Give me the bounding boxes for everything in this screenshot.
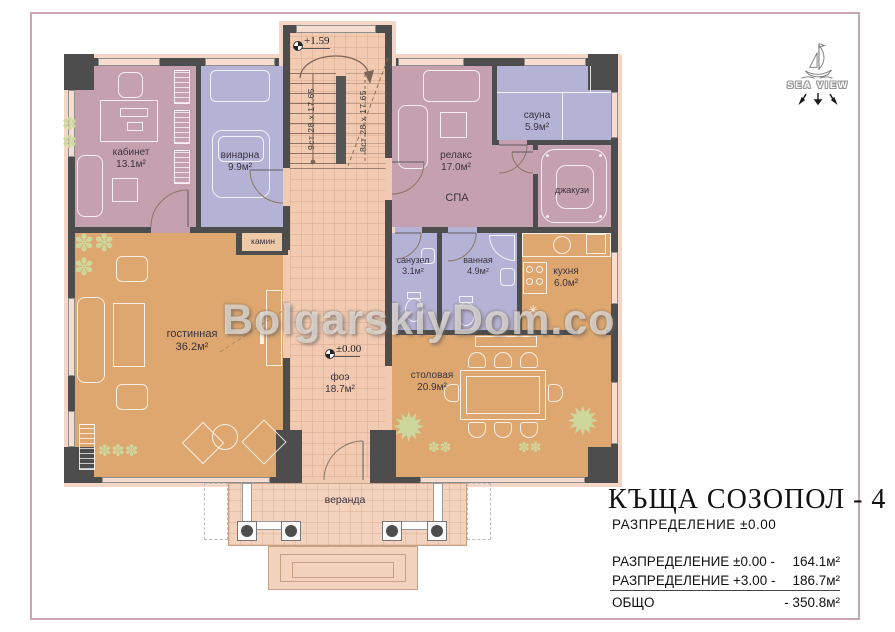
room-label-sauna: сауна5.9м² <box>524 110 551 134</box>
total-divider <box>610 590 840 591</box>
corner-bottom-right <box>588 447 618 483</box>
room-label-kabinet: кабинет13.1м² <box>113 147 150 171</box>
plant-icon: ✽✽ ✽ <box>74 232 114 280</box>
jacuzzi-jet <box>546 215 549 218</box>
window <box>98 58 160 66</box>
level-marker-icon <box>325 349 335 359</box>
window <box>611 92 618 138</box>
floor-plan-page: 9ст 28 х 17.65 8ст 28 х 17.65 +1.59 ±0.0… <box>0 0 895 632</box>
round-table <box>212 424 238 450</box>
room-label-kamin: камин <box>251 236 275 246</box>
sofa <box>77 297 105 383</box>
opening-vannaya-door <box>448 227 477 233</box>
area-row: РАЗПРЕДЕЛЕНИЕ +3.00 - 186.7м² <box>612 573 840 588</box>
coffee-table <box>113 303 145 367</box>
keyboard <box>127 122 143 131</box>
sauna-bench-line <box>497 92 611 93</box>
wall-sauna-left <box>492 66 497 145</box>
burner <box>526 278 533 285</box>
kitchen-sink <box>553 236 571 254</box>
logo-arrows-icon <box>798 92 838 105</box>
total-value: - 350.8м² <box>784 595 840 610</box>
room-label-spa: СПА <box>445 192 468 205</box>
window <box>398 58 464 66</box>
fridge <box>586 234 606 254</box>
plant-icon: ✽✽ <box>518 440 541 454</box>
window <box>524 58 586 66</box>
chair <box>548 384 563 402</box>
plant-icon: ✽✽ <box>428 440 451 454</box>
column <box>281 521 301 541</box>
sea-view-label: SEA VIEW <box>782 80 854 91</box>
room-label-veranda: веранда <box>325 494 366 507</box>
stairs-landing-line <box>290 168 386 169</box>
area-row-value: 186.7м² <box>792 573 840 588</box>
room-label-sanuzel: санузел3.1м² <box>397 255 430 277</box>
bookshelf <box>174 150 190 184</box>
sofa <box>210 70 270 102</box>
stairs-stringer <box>336 76 346 164</box>
room-label-vannaya: ванная4.9м² <box>463 255 493 277</box>
stairs-label-down: 8ст 28 х 17.65 <box>358 76 368 166</box>
window <box>296 25 376 33</box>
corner-top-right <box>588 54 618 90</box>
jacuzzi-jet <box>599 215 602 218</box>
chair <box>494 352 512 368</box>
window <box>611 382 618 444</box>
opening-jacuzzi-door <box>533 150 538 174</box>
area-row-label: РАЗПРЕДЕЛЕНИЕ ±0.00 - <box>612 554 775 569</box>
column-icon <box>431 525 443 537</box>
watermark: BolgarskiyDom.co <box>222 296 620 348</box>
table <box>440 112 467 138</box>
total-label: ОБЩО <box>612 595 655 610</box>
column <box>382 521 402 541</box>
page-title: КЪЩА СОЗОПОЛ - 4 <box>608 484 886 516</box>
chair <box>520 352 538 368</box>
jacuzzi-jet <box>599 154 602 157</box>
corner-top-left <box>64 54 94 90</box>
sailboat-icon <box>790 40 846 80</box>
page-subtitle: РАЗПРЕДЕЛЕНИЕ ±0.00 <box>612 517 776 532</box>
level-marker-line <box>302 48 330 49</box>
opening-sauna-door <box>499 140 527 145</box>
column <box>237 521 257 541</box>
level-marker-icon <box>293 41 303 51</box>
level-upper: +1.59 <box>304 35 329 47</box>
palm-icon: ✹ <box>392 408 426 448</box>
room-label-vinarna: винарна9.9м² <box>221 150 260 174</box>
burner <box>526 266 533 273</box>
room-label-gostinnaya: гостинная36.2м² <box>167 328 218 354</box>
area-row-label: РАЗПРЕДЕЛЕНИЕ +3.00 - <box>612 573 775 588</box>
plant-icon: ✽✽✽ <box>98 444 138 460</box>
bookshelf <box>174 110 190 144</box>
level-marker-line <box>334 356 360 357</box>
window <box>68 298 75 376</box>
window <box>205 58 275 66</box>
room-label-jacuzzi: джакузи <box>555 185 589 196</box>
sauna-bench-line <box>590 66 591 92</box>
column <box>427 521 447 541</box>
side-table <box>112 178 138 202</box>
sofa <box>77 155 103 217</box>
sea-view-logo: SEA VIEW <box>782 40 854 105</box>
room-label-foyer: фоэ18.7м² <box>325 372 355 396</box>
opening-relax-door <box>385 158 392 200</box>
sink <box>500 268 515 286</box>
dining-table-inner <box>466 376 540 414</box>
bookshelf <box>174 70 190 104</box>
sauna-bench-line <box>562 92 563 140</box>
room-label-relax: релакс17.0м² <box>440 150 472 174</box>
burner <box>536 266 543 273</box>
armchair <box>398 105 428 169</box>
total-row: ОБЩО - 350.8м² <box>612 595 840 610</box>
desk <box>100 100 158 142</box>
burner <box>536 278 543 285</box>
roof-overhang-dashed <box>467 483 491 540</box>
column-icon <box>386 525 398 537</box>
armchair <box>116 384 148 410</box>
jacuzzi-jet <box>546 154 549 157</box>
opening-sanuzel-door <box>395 227 422 233</box>
desk-chair <box>118 72 143 98</box>
palm-icon: ✹ <box>566 402 600 442</box>
column-icon <box>285 525 297 537</box>
veranda-step <box>292 562 394 578</box>
opening-vinarna-door <box>283 168 290 206</box>
sofa <box>423 70 480 102</box>
radiator <box>79 424 95 470</box>
armchair <box>116 256 148 282</box>
plant-icon: ✽ ✽ <box>62 115 77 151</box>
room-label-kuhnya: кухня6.0м² <box>553 266 578 290</box>
area-row-value: 164.1м² <box>792 554 840 569</box>
opening-kabinet-door <box>151 227 190 233</box>
opening-stolovaya <box>385 366 392 438</box>
area-row: РАЗПРЕДЕЛЕНИЕ ±0.00 - 164.1м² <box>612 554 840 569</box>
chair <box>468 352 486 368</box>
roof-overhang-dashed <box>204 483 228 540</box>
column-icon <box>241 525 253 537</box>
window <box>68 411 75 447</box>
room-label-stolovaya: столовая20.9м² <box>411 370 454 394</box>
monitor <box>120 108 148 117</box>
stairs-label-up: 9ст 28 х 17.65 <box>306 74 316 164</box>
